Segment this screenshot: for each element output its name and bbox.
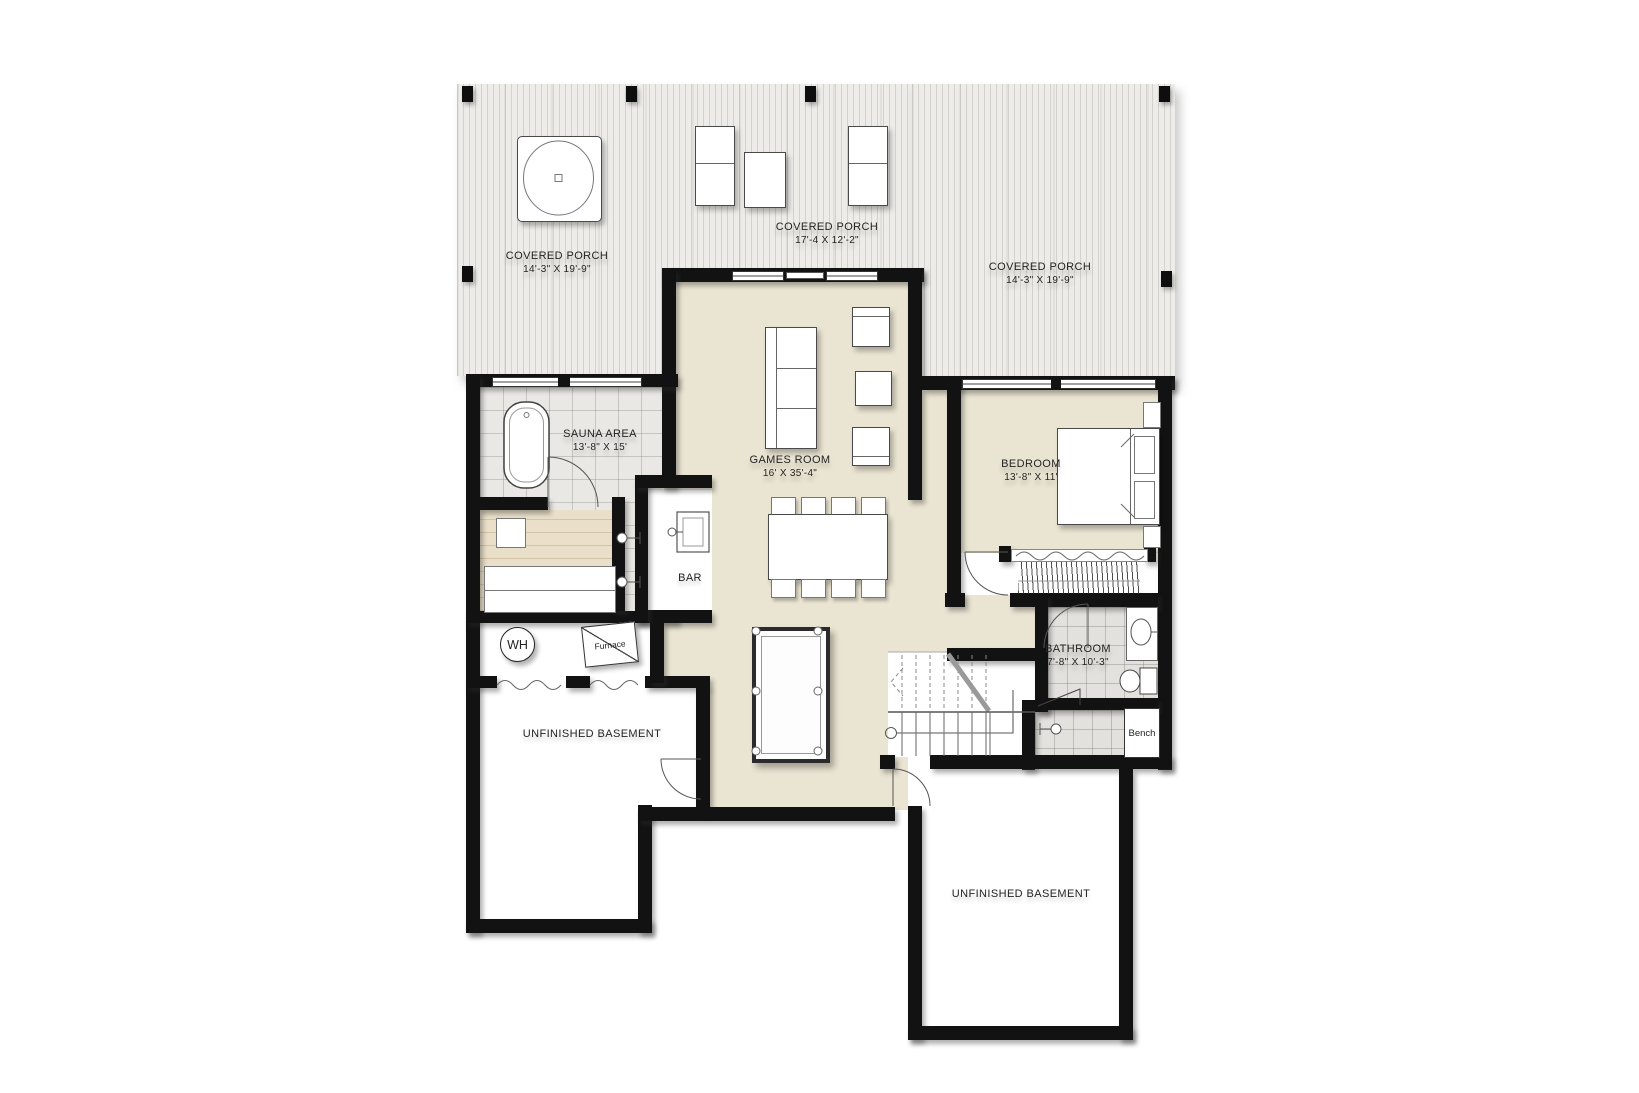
bathroom-door <box>1044 604 1088 648</box>
bed-fold-marks <box>1121 434 1134 517</box>
bathtub <box>504 402 549 488</box>
basement-right-door <box>893 769 930 806</box>
room-label-bar: BAR <box>678 572 702 584</box>
room-label-unfinished-basement-right: UNFINISHED BASEMENT <box>952 888 1090 900</box>
shower-fixture <box>1040 723 1061 735</box>
room-label-unfinished-basement-left: UNFINISHED BASEMENT <box>523 728 661 740</box>
bedroom-door <box>965 552 1008 595</box>
room-dims: 7'-8" X 10'-3" <box>1045 657 1111 670</box>
plan-linework <box>0 0 1639 1093</box>
room-name: SAUNA AREA <box>563 428 637 442</box>
room-label-sauna-area: SAUNA AREA 13'-8" X 15' <box>563 428 637 454</box>
room-dims: 14'-3" X 19'-9" <box>506 264 608 277</box>
shower-door <box>1038 689 1080 706</box>
floor-plan: Bench WH Furnace <box>0 0 1639 1093</box>
room-label-bedroom: BEDROOM 13'-8" X 11' <box>1001 458 1061 484</box>
room-dims: 14'-3" X 19'-9" <box>989 275 1091 288</box>
hot-tub-detail <box>524 141 594 215</box>
room-dims: 13'-8" X 15' <box>563 442 637 455</box>
room-name: BATHROOM <box>1045 643 1111 657</box>
room-label-covered-porch-right: COVERED PORCH 14'-3" X 19'-9" <box>989 261 1091 287</box>
room-dims: 13'-8" X 11' <box>1001 472 1061 485</box>
staircase <box>886 652 1036 756</box>
room-name: COVERED PORCH <box>776 221 878 235</box>
pool-pockets <box>752 627 822 755</box>
basement-left-door <box>661 759 701 799</box>
sauna-door <box>548 457 598 507</box>
room-name: BEDROOM <box>1001 458 1061 472</box>
bathroom-sink <box>1131 619 1157 645</box>
room-dims: 16' X 35'-4" <box>749 468 830 481</box>
room-label-covered-porch-center: COVERED PORCH 17'-4 X 12'-2" <box>776 221 878 247</box>
bar-sink <box>668 512 709 552</box>
room-label-games-room: GAMES ROOM 16' X 35'-4" <box>749 454 830 480</box>
room-name: COVERED PORCH <box>989 261 1091 275</box>
shower-fixture <box>617 532 640 588</box>
room-name: COVERED PORCH <box>506 250 608 264</box>
room-label-covered-porch-left: COVERED PORCH 14'-3" X 19'-9" <box>506 250 608 276</box>
room-label-bathroom: BATHROOM 7'-8" X 10'-3" <box>1045 643 1111 669</box>
room-dims: 17'-4 X 12'-2" <box>776 235 878 248</box>
toilet <box>1120 668 1157 694</box>
room-name: GAMES ROOM <box>749 454 830 468</box>
